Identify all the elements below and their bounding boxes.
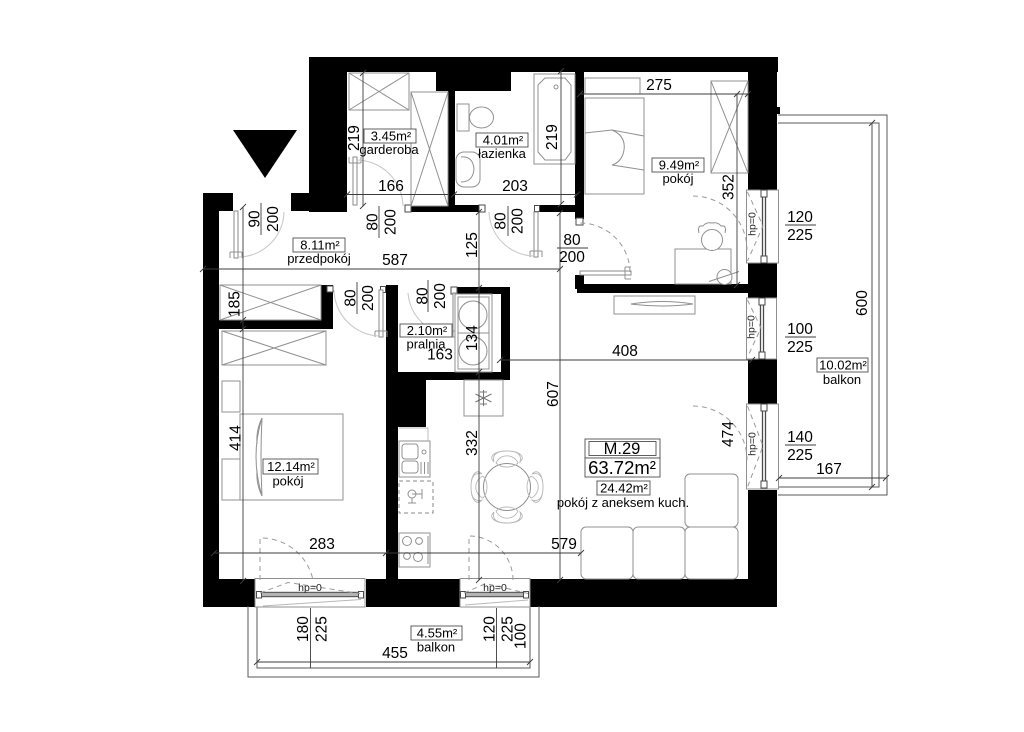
svg-text:12.14m²: 12.14m²: [267, 459, 315, 474]
svg-text:pokój: pokój: [272, 474, 303, 489]
svg-text:185: 185: [227, 291, 244, 317]
svg-text:200: 200: [510, 208, 527, 234]
svg-text:455: 455: [382, 645, 408, 662]
svg-text:332: 332: [464, 430, 481, 456]
svg-text:przedpokój: przedpokój: [287, 251, 351, 266]
svg-text:200: 200: [432, 283, 449, 309]
svg-text:200: 200: [360, 285, 377, 311]
svg-text:pokój: pokój: [662, 171, 693, 186]
svg-text:200: 200: [265, 206, 282, 232]
svg-text:225: 225: [314, 616, 331, 642]
svg-text:408: 408: [612, 343, 638, 360]
svg-text:hp=0: hp=0: [298, 582, 322, 594]
svg-text:10.02m²: 10.02m²: [819, 358, 867, 373]
svg-text:balkon: balkon: [823, 372, 861, 387]
svg-text:80: 80: [493, 212, 510, 230]
svg-text:140: 140: [787, 429, 813, 446]
svg-text:pokój z aneksem kuch.: pokój z aneksem kuch.: [557, 495, 689, 510]
svg-text:100: 100: [513, 623, 530, 649]
svg-text:275: 275: [646, 77, 672, 94]
svg-text:414: 414: [228, 425, 245, 451]
svg-text:garderoba: garderoba: [359, 142, 419, 157]
svg-text:hp=0: hp=0: [747, 432, 759, 456]
svg-text:587: 587: [382, 252, 408, 269]
svg-text:225: 225: [787, 227, 813, 244]
svg-text:166: 166: [378, 178, 404, 195]
svg-text:203: 203: [502, 178, 528, 195]
svg-text:24.42m²: 24.42m²: [600, 481, 648, 496]
svg-text:90: 90: [247, 210, 264, 228]
svg-text:352: 352: [721, 174, 738, 200]
svg-text:225: 225: [787, 339, 813, 356]
svg-text:200: 200: [383, 209, 400, 235]
svg-text:4.55m²: 4.55m²: [417, 626, 458, 641]
svg-text:474: 474: [720, 421, 737, 447]
svg-text:M.29: M.29: [604, 440, 641, 458]
svg-text:134: 134: [464, 325, 481, 351]
svg-text:219: 219: [544, 124, 561, 150]
svg-text:225: 225: [787, 447, 813, 464]
svg-text:200: 200: [559, 249, 585, 266]
svg-text:80: 80: [415, 287, 432, 305]
svg-text:hp=0: hp=0: [746, 315, 758, 339]
svg-text:hp=0: hp=0: [747, 212, 759, 236]
svg-text:125: 125: [464, 232, 481, 258]
svg-text:167: 167: [816, 461, 842, 478]
svg-text:163: 163: [427, 347, 453, 364]
svg-text:283: 283: [309, 536, 335, 553]
svg-text:80: 80: [343, 289, 360, 307]
svg-text:120: 120: [482, 616, 499, 642]
svg-text:balkon: balkon: [417, 640, 455, 655]
svg-text:600: 600: [854, 290, 871, 316]
svg-text:łazienka: łazienka: [478, 146, 526, 161]
svg-text:100: 100: [787, 321, 813, 338]
svg-text:180: 180: [295, 616, 312, 642]
svg-text:80: 80: [563, 232, 581, 249]
svg-text:579: 579: [551, 536, 577, 553]
svg-text:hp=0: hp=0: [483, 582, 507, 594]
svg-text:120: 120: [787, 209, 813, 226]
svg-text:607: 607: [545, 381, 562, 407]
svg-text:63.72m²: 63.72m²: [588, 457, 656, 478]
svg-text:80: 80: [365, 213, 382, 231]
